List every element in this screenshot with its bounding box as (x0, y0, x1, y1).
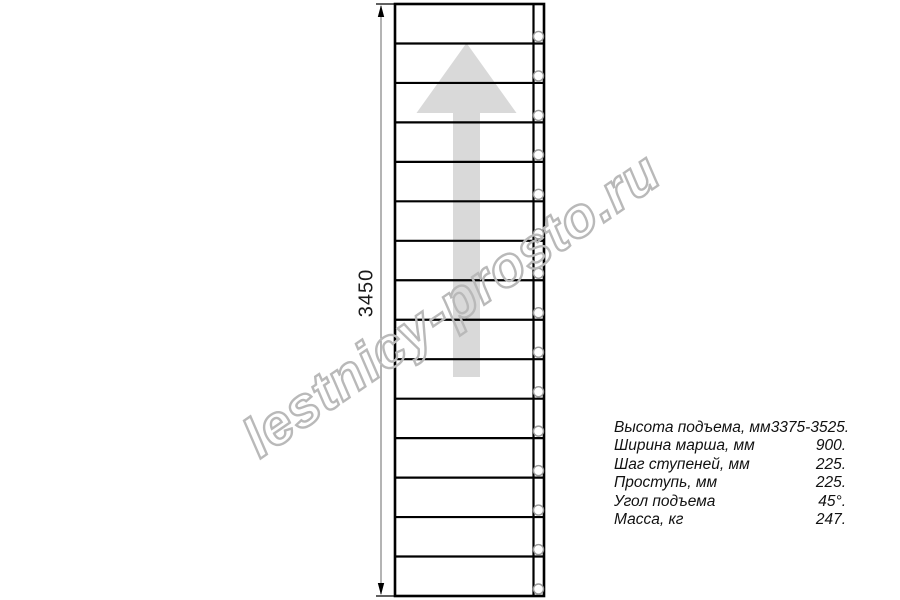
bolt-circle (534, 387, 544, 397)
spec-value: 45°. (818, 493, 846, 511)
spec-row: Ширина марша, мм 900. (614, 437, 846, 455)
bolt-circle (534, 545, 544, 555)
spec-value: 3375-3525. (771, 419, 849, 437)
bolt-circle (534, 505, 544, 515)
bolt-circle (534, 308, 544, 318)
bolt-circle (534, 31, 544, 41)
bolt-circle (534, 466, 544, 476)
up-direction-arrow (417, 43, 517, 377)
bolt-circle (534, 110, 544, 120)
dimension-arrowhead-top (378, 5, 384, 17)
spec-label: Масса, кг (614, 511, 683, 529)
bolt-circle (534, 268, 544, 278)
bolt-circle (534, 229, 544, 239)
spec-label: Угол подъема (614, 493, 715, 511)
bolt-circle (534, 426, 544, 436)
spec-value: 247. (816, 511, 846, 529)
dimension-arrowhead-bottom (378, 583, 384, 595)
staircase-drawing-page: 3450 lestnicy-prosto.ru Высота подъема, … (0, 0, 900, 600)
dimension-height-label: 3450 (356, 269, 379, 318)
bolt-circle (534, 150, 544, 160)
spec-label: Ширина марша, мм (614, 437, 755, 455)
bolt-circle (534, 189, 544, 199)
spec-label: Высота подъема, мм (614, 419, 771, 437)
spec-row: Масса, кг 247. (614, 511, 846, 529)
spec-value: 900. (816, 437, 846, 455)
bolt-circle (534, 347, 544, 357)
spec-label: Шаг ступеней, мм (614, 456, 750, 474)
spec-value: 225. (816, 456, 846, 474)
spec-row: Угол подъема 45°. (614, 493, 846, 511)
bolt-circle (534, 584, 544, 594)
spec-row: Шаг ступеней, мм 225. (614, 456, 846, 474)
bolt-circle (534, 71, 544, 81)
spec-row: Проступь, мм 225. (614, 474, 846, 492)
spec-label: Проступь, мм (614, 474, 717, 492)
spec-value: 225. (816, 474, 846, 492)
specs-table: Высота подъема, мм 3375-3525. Ширина мар… (614, 419, 846, 529)
spec-row: Высота подъема, мм 3375-3525. (614, 419, 846, 437)
